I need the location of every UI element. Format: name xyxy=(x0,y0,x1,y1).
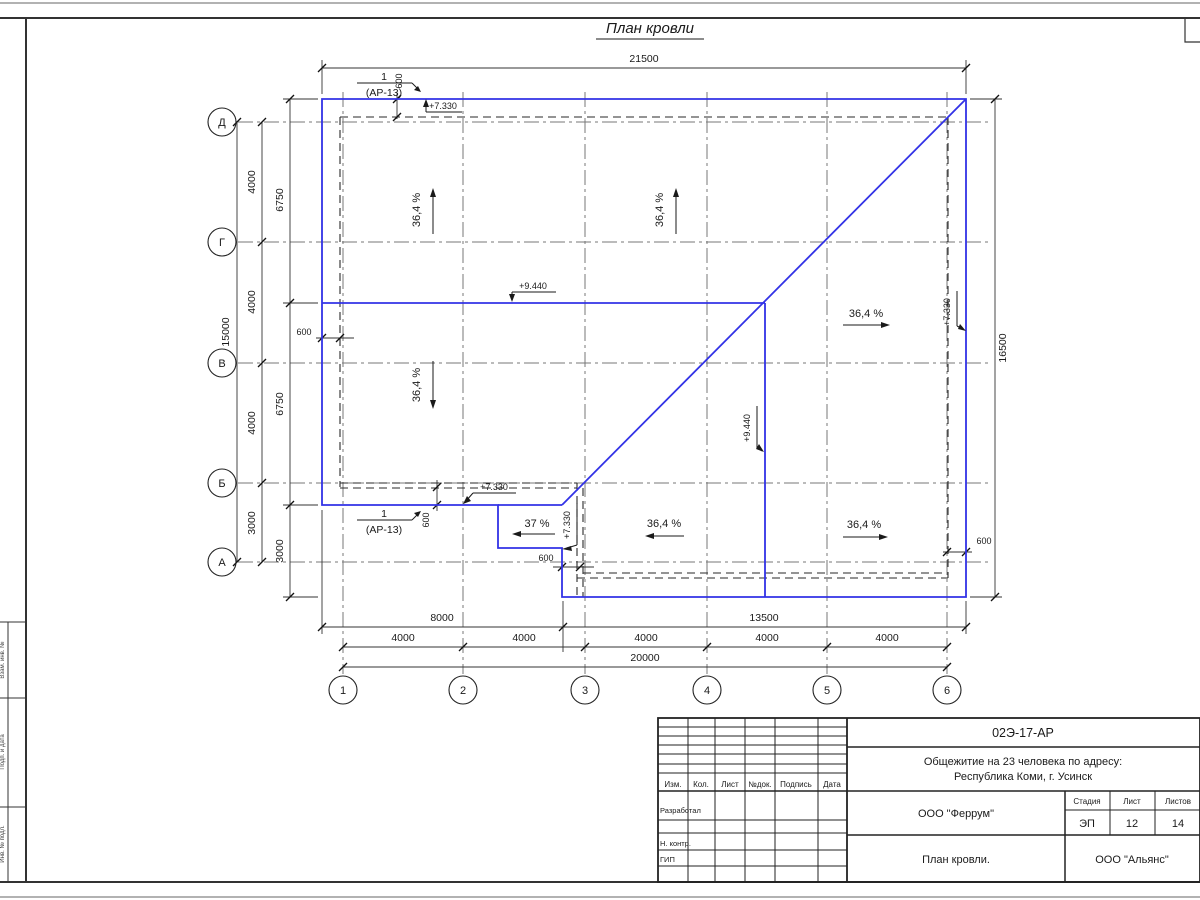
axis-letter: В xyxy=(218,358,225,370)
role-gip: ГИП xyxy=(660,855,675,864)
elevation-value: +7.330 xyxy=(429,101,457,111)
stage-value: ЭП xyxy=(1079,818,1095,830)
elevation-mark: +7.330 xyxy=(463,482,516,504)
dim-axis-spacing: 4000 xyxy=(246,290,258,314)
axis-letter: Д xyxy=(218,117,226,129)
role-nkontr: Н. контр. xyxy=(660,839,691,848)
col-header-ndok: №док. xyxy=(748,780,771,789)
dim-roof-segment: 3000 xyxy=(274,539,286,563)
dim-total-top: 21500 xyxy=(629,53,658,65)
dim-total-left: 15000 xyxy=(220,317,232,346)
slope-label: 36,4 % xyxy=(843,519,888,540)
dim-axis-spacing: 4000 xyxy=(246,411,258,435)
side-strip-label: Взам. инв. № xyxy=(0,641,6,678)
dim-parapet-offset: 600 xyxy=(296,327,311,337)
dim-axis-spacing: 3000 xyxy=(246,511,258,535)
axis-grid xyxy=(238,92,990,674)
slope-label: 36,4 % xyxy=(843,308,890,328)
slope-value: 36,4 % xyxy=(847,519,881,531)
roof-valley-line xyxy=(562,99,966,505)
callout-ref: (АР-13) xyxy=(366,524,402,536)
col-header-data: Дата xyxy=(823,780,841,789)
section-callout-top: 1 (АР-13) xyxy=(357,71,421,99)
stage-label: Стадия xyxy=(1073,797,1100,806)
slope-label: 36,4 % xyxy=(645,518,684,539)
dim-total-right: 16500 xyxy=(997,333,1009,362)
dim-bottom-span: 13500 xyxy=(749,612,778,624)
slope-value: 36,4 % xyxy=(849,308,883,320)
axis-number: 6 xyxy=(944,685,950,697)
roof-plan-drawing: Взам. инв. № Подп. и дата Инв. № подл. П… xyxy=(0,0,1200,900)
axis-number: 2 xyxy=(460,685,466,697)
elevation-mark: +7.330 xyxy=(562,503,577,551)
dim-total-bottom: 20000 xyxy=(630,652,659,664)
slope-value: 36,4 % xyxy=(411,193,423,227)
elevation-mark: +9.440 xyxy=(509,281,556,302)
slope-value: 36,4 % xyxy=(647,518,681,530)
side-strip-label: Инв. № подл. xyxy=(0,825,6,863)
org2-name: ООО "Альянс" xyxy=(1095,854,1169,866)
project-name-line2: Республика Коми, г. Усинск xyxy=(954,771,1092,783)
elevation-value: +7.330 xyxy=(942,298,952,326)
dim-axis-spacing: 4000 xyxy=(512,632,536,644)
axis-letter: Г xyxy=(219,237,225,249)
project-name-line1: Общежитие на 23 человека по адресу: xyxy=(924,756,1122,768)
slope-value: 36,4 % xyxy=(411,368,423,402)
elevation-value: +9.440 xyxy=(519,281,547,291)
dim-roof-segment: 6750 xyxy=(274,188,286,212)
dimension-ticks xyxy=(233,64,999,671)
dim-roof-segment: 6750 xyxy=(274,392,286,416)
col-header-list: Лист xyxy=(721,780,739,789)
dim-axis-spacing: 4000 xyxy=(755,632,779,644)
dim-axis-spacing: 4000 xyxy=(391,632,415,644)
axis-number: 5 xyxy=(824,685,830,697)
elevation-mark: +7.330 xyxy=(423,99,462,112)
slope-value: 37 % xyxy=(524,518,549,530)
col-header-podpis: Подпись xyxy=(780,780,812,789)
elevation-value: +9.440 xyxy=(742,414,752,442)
slope-label: 36,4 % xyxy=(411,361,436,409)
axis-number: 4 xyxy=(704,685,710,697)
sheets-label: Листов xyxy=(1165,797,1191,806)
slope-value: 36,4 % xyxy=(654,193,666,227)
elevation-value: +7.330 xyxy=(480,482,508,492)
section-callout-bottom: 1 (АР-13) xyxy=(357,508,421,536)
sheet-value: 12 xyxy=(1126,818,1138,830)
sheets-value: 14 xyxy=(1172,818,1184,830)
sheet-label: Лист xyxy=(1123,797,1141,806)
role-razrabotal: Разработал xyxy=(660,806,701,815)
dim-parapet-offset: 600 xyxy=(976,536,991,546)
slope-label: 36,4 % xyxy=(411,188,436,234)
elevation-value: +7.330 xyxy=(562,511,572,539)
axis-number: 1 xyxy=(340,685,346,697)
corner-stamp-box xyxy=(1185,18,1200,42)
elevation-mark: +9.440 xyxy=(742,406,764,452)
doc-code: 02Э-17-АР xyxy=(992,726,1054,740)
axis-letter: Б xyxy=(218,478,225,490)
dim-bottom-span: 8000 xyxy=(430,612,454,624)
callout-number: 1 xyxy=(381,508,387,520)
dim-axis-spacing: 4000 xyxy=(634,632,658,644)
axis-number: 3 xyxy=(582,685,588,697)
drawing-sheet: Взам. инв. № Подп. и дата Инв. № подл. П… xyxy=(0,0,1200,900)
dim-axis-spacing: 4000 xyxy=(875,632,899,644)
axis-letter: А xyxy=(218,557,226,569)
org-name: ООО "Феррум" xyxy=(918,808,994,820)
slope-label: 37 % xyxy=(512,518,555,537)
dim-parapet-offset: 600 xyxy=(421,512,431,527)
slope-label: 36,4 % xyxy=(654,188,679,234)
callout-number: 1 xyxy=(381,71,387,83)
drawing-name: План кровли. xyxy=(922,854,990,866)
callout-ref: (АР-13) xyxy=(366,87,402,99)
elevation-mark: +7.330 xyxy=(942,291,966,331)
drawing-title: План кровли xyxy=(606,20,695,37)
side-strip-label: Подп. и дата xyxy=(0,734,6,770)
dim-parapet-offset: 600 xyxy=(538,553,553,563)
col-header-izm: Изм. xyxy=(664,780,681,789)
dim-axis-spacing: 4000 xyxy=(246,170,258,194)
col-header-kol: Кол. xyxy=(693,780,709,789)
